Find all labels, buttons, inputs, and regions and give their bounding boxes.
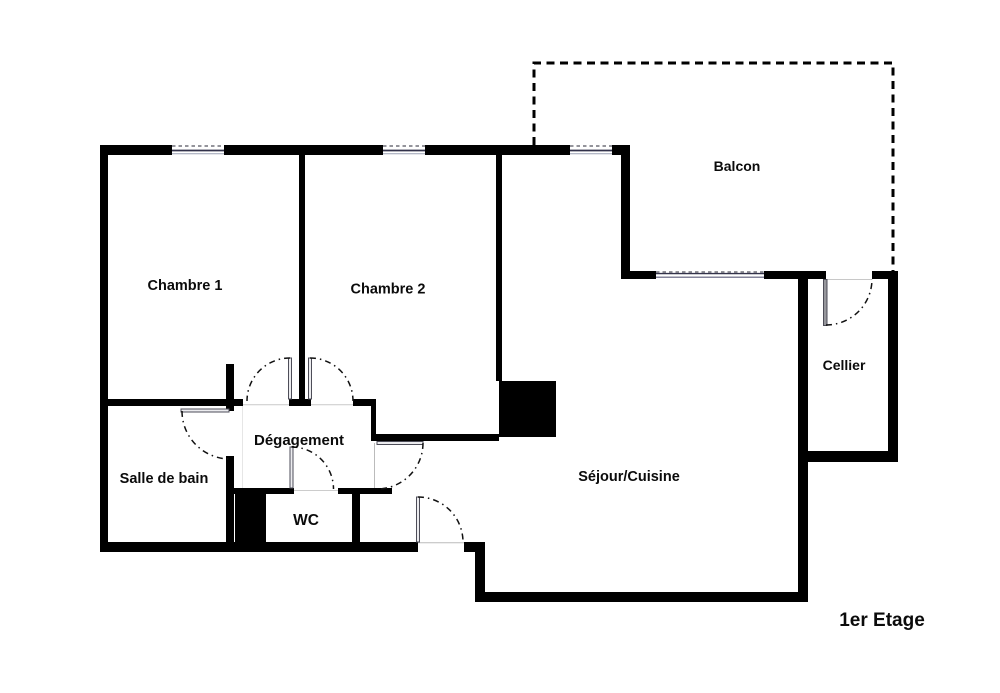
svg-text:Cellier: Cellier	[823, 357, 866, 373]
svg-text:WC: WC	[293, 512, 319, 529]
svg-text:Séjour/Cuisine: Séjour/Cuisine	[578, 469, 680, 485]
svg-text:Chambre 1: Chambre 1	[148, 278, 223, 294]
svg-text:Salle de bain: Salle de bain	[120, 471, 209, 487]
svg-text:1er Etage: 1er Etage	[839, 610, 925, 631]
svg-text:Chambre 2: Chambre 2	[351, 282, 426, 298]
svg-text:Balcon: Balcon	[714, 158, 761, 174]
svg-text:Dégagement: Dégagement	[254, 432, 344, 449]
